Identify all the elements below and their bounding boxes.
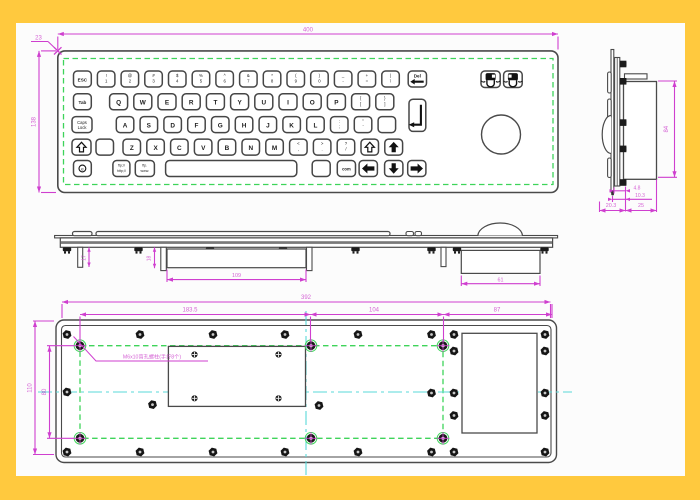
svg-text:A: A: [123, 122, 128, 129]
svg-text:183.5: 183.5: [182, 308, 198, 314]
svg-text:61: 61: [498, 278, 504, 284]
svg-text:E: E: [165, 100, 170, 107]
svg-text:;: ;: [339, 124, 340, 129]
svg-text:,: ,: [298, 147, 299, 152]
svg-text:110: 110: [28, 383, 34, 393]
svg-text:S: S: [147, 122, 152, 129]
svg-text:www.: www.: [141, 169, 150, 173]
svg-text:H: H: [242, 122, 247, 129]
svg-text:104: 104: [369, 308, 380, 314]
svg-text:17: 17: [82, 255, 88, 261]
svg-text:Lock: Lock: [78, 125, 88, 130]
svg-text:e: e: [81, 167, 84, 172]
svg-text:25: 25: [638, 203, 644, 209]
svg-text:T: T: [213, 100, 217, 107]
svg-text:M6x10盲孔螺柱(手拧8个): M6x10盲孔螺柱(手拧8个): [123, 353, 181, 361]
svg-text:M: M: [272, 145, 277, 152]
svg-text:23: 23: [35, 36, 42, 42]
svg-text:400: 400: [303, 28, 314, 34]
svg-text:K: K: [289, 122, 294, 129]
svg-text:392: 392: [301, 295, 312, 301]
svg-text:18: 18: [147, 256, 153, 262]
svg-text:138: 138: [32, 116, 38, 127]
svg-text:%: %: [199, 73, 203, 78]
svg-text:F: F: [194, 122, 198, 129]
svg-text:ftp;//: ftp;//: [118, 163, 125, 167]
svg-text:N: N: [248, 145, 253, 152]
svg-text:80: 80: [42, 388, 48, 395]
svg-text:109: 109: [232, 273, 241, 279]
svg-text:20.3: 20.3: [606, 203, 617, 209]
svg-text:ESC: ESC: [78, 77, 88, 82]
svg-text:V: V: [201, 145, 206, 152]
svg-text:87: 87: [494, 308, 501, 314]
svg-text:@: @: [128, 73, 132, 78]
svg-text:I: I: [287, 100, 289, 107]
svg-text:L: L: [313, 122, 317, 129]
svg-text:D: D: [170, 122, 175, 129]
svg-text:.: .: [321, 147, 322, 152]
svg-text:]: ]: [384, 101, 385, 106]
svg-text:U: U: [261, 100, 266, 107]
svg-text:P: P: [334, 100, 339, 107]
svg-text:G: G: [218, 122, 223, 129]
svg-text:Y: Y: [237, 100, 242, 107]
svg-text:Del: Del: [414, 74, 421, 79]
svg-text:84: 84: [664, 125, 670, 132]
svg-text:^: ^: [224, 73, 226, 78]
svg-text:Tab: Tab: [78, 100, 86, 105]
svg-text:Z: Z: [130, 145, 134, 152]
svg-text:10.3: 10.3: [635, 193, 645, 199]
svg-text:4.8: 4.8: [634, 185, 641, 191]
svg-text:&: &: [247, 73, 250, 78]
svg-text:C: C: [177, 145, 182, 152]
svg-text:Q: Q: [116, 100, 121, 107]
svg-text:W: W: [140, 100, 147, 107]
svg-text:!: !: [106, 73, 107, 78]
svg-text::: :: [339, 118, 340, 123]
svg-text:Caps: Caps: [77, 120, 87, 125]
svg-text:|: |: [390, 73, 391, 78]
svg-text:R: R: [189, 100, 194, 107]
svg-text:O: O: [310, 100, 315, 107]
svg-text:com: com: [342, 167, 351, 172]
svg-text:J: J: [266, 122, 270, 129]
svg-text:http;//: http;//: [117, 169, 126, 173]
svg-text:ftp.: ftp.: [142, 163, 147, 167]
svg-text:B: B: [225, 145, 230, 152]
svg-text:X: X: [153, 145, 158, 152]
